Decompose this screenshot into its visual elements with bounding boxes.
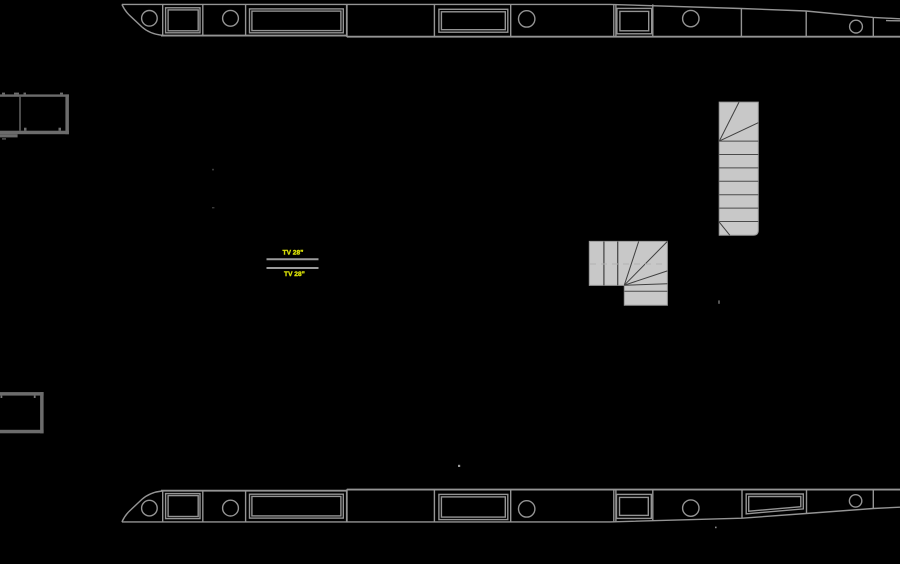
svg-text:TV 28”: TV 28”: [284, 271, 305, 278]
svg-text:TV 28”: TV 28”: [283, 250, 304, 257]
